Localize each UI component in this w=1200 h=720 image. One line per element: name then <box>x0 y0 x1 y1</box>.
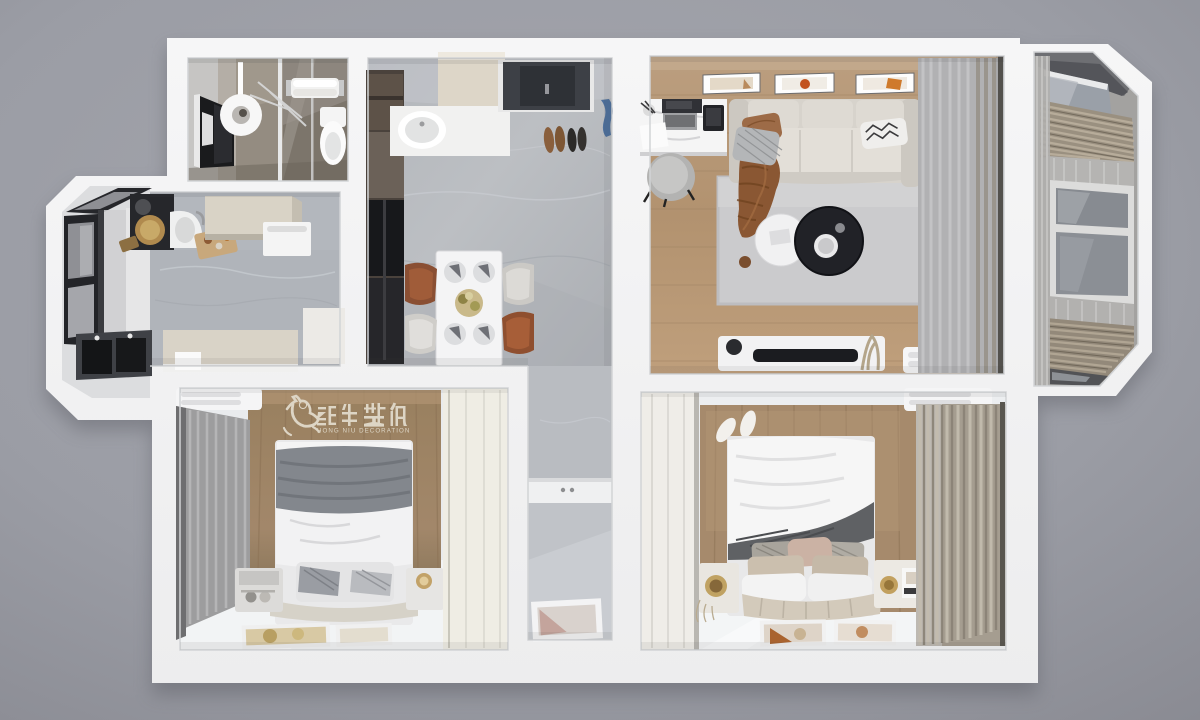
svg-text:HONG NIU DECORATION: HONG NIU DECORATION <box>317 428 410 435</box>
